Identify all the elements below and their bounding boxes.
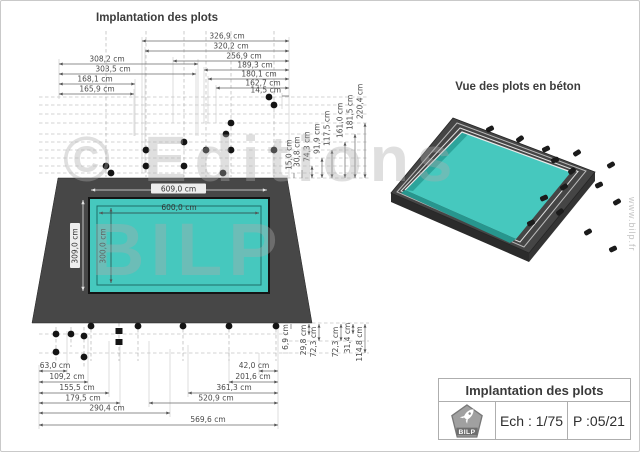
dim-label: 30,8 cm (293, 136, 302, 167)
dim-label: 161,0 cm (336, 103, 345, 138)
plot-dot (228, 147, 235, 154)
plot-dot (108, 170, 115, 177)
dim-label: 180,1 cm (241, 70, 276, 79)
dim-label: 109,2 cm (49, 372, 84, 381)
dim-label: 320,2 cm (213, 42, 248, 51)
plot-dot (223, 131, 230, 138)
dim-label: 189,3 cm (237, 61, 272, 70)
plot-dot (68, 331, 75, 338)
dim-label: 155,5 cm (59, 383, 94, 392)
page-number: P :05/21 (568, 402, 630, 439)
dim-label: 303,5 cm (95, 65, 130, 74)
dim-label: 220,4 cm (356, 84, 365, 119)
plot-block (594, 181, 603, 189)
plot-dot (180, 323, 187, 330)
plot-dot (273, 323, 280, 330)
dim-labels-bottom-right: 42,0 cm 201,6 cm 361,3 cm 520,9 cm 569,6… (190, 361, 270, 424)
plot-block (572, 149, 581, 157)
plot-square (116, 328, 123, 334)
dim-label: 326,9 cm (209, 32, 244, 41)
plot-dot (81, 333, 88, 340)
dim-label: 72,3 cm (309, 327, 318, 358)
bilp-logo-text: BILP (459, 428, 476, 435)
dim-label: 569,6 cm (190, 415, 225, 424)
bilp-logo-icon: BILP (451, 404, 483, 438)
plot-dot (53, 331, 60, 338)
dim-label: 600,0 cm (161, 203, 196, 212)
plot-dot (220, 170, 227, 177)
plot-block (583, 228, 592, 236)
plot-dot (271, 147, 278, 154)
dim-label: 201,6 cm (235, 372, 270, 381)
dim-label: 361,3 cm (216, 383, 251, 392)
dim-label: 179,5 cm (65, 394, 100, 403)
plot-dot (181, 139, 188, 146)
dim-label: 520,9 cm (198, 394, 233, 403)
plot-dot (203, 147, 210, 154)
dim-labels-bottom-vertical: 6,9 cm 29,8 cm 72,3 cm 72,3 cm 31,4 cm 1… (281, 323, 364, 362)
title-block: Implantation des plots BILP Ech : 1/75 P… (438, 378, 631, 440)
plot-dot (135, 323, 142, 330)
plan-view-title: Implantation des plots (96, 12, 218, 24)
plot-dot (88, 323, 95, 330)
dim-label: 14,5 cm (250, 86, 281, 95)
dim-labels-right: 15,0 cm 30,8 cm 74,3 cm 91,9 cm 117,5 cm… (285, 84, 365, 170)
dim-label: 29,8 cm (299, 325, 308, 356)
scale-value: Ech : 1/75 (496, 402, 568, 439)
dim-label: 72,3 cm (331, 327, 340, 358)
plot-block (608, 245, 617, 253)
dim-label: 6,9 cm (281, 324, 290, 350)
title-block-title: Implantation des plots (439, 379, 630, 402)
dim-label: 165,9 cm (79, 85, 114, 94)
dim-label: 609,0 cm (161, 185, 196, 194)
plot-dot (228, 120, 235, 127)
perspective-view-title: Vue des plots en béton (453, 81, 583, 93)
dim-label: 91,9 cm (313, 123, 322, 154)
dim-label: 309,0 cm (71, 228, 80, 263)
plot-block (612, 198, 621, 206)
plot-block (606, 161, 615, 169)
dim-label: 31,4 cm (343, 323, 352, 354)
website-vertical-label: www.bilp.fr (627, 197, 637, 252)
dim-label: 256,9 cm (226, 52, 261, 61)
dim-label: 114,8 cm (355, 326, 364, 361)
dim-label: 63,0 cm (40, 361, 71, 370)
dim-label: 74,3 cm (303, 131, 312, 162)
bilp-logo: BILP (439, 402, 496, 439)
plot-dot (226, 323, 233, 330)
pool-plan (89, 198, 269, 293)
dim-label: 168,1 cm (77, 75, 112, 84)
dim-label: 308,2 cm (89, 55, 124, 64)
dim-label: 42,0 cm (239, 361, 270, 370)
plot-dot (143, 163, 150, 170)
dim-labels-bottom-left: 63,0 cm 109,2 cm 155,5 cm 179,5 cm 290,4… (40, 361, 125, 413)
plot-dot (53, 349, 60, 356)
plot-dot (81, 354, 88, 361)
drawing-page: Implantation des plots Vue des plots en … (0, 0, 640, 452)
plot-square (116, 339, 123, 345)
plot-dot (266, 94, 273, 101)
plan-view: 609,0 cm 600,0 cm 309,0 cm 300,0 cm (32, 31, 371, 429)
plot-dot (181, 163, 188, 170)
dim-label: 300,0 cm (99, 228, 108, 263)
dim-label: 181,5 cm (346, 95, 355, 130)
plot-dot (271, 102, 278, 109)
dim-label: 290,4 cm (89, 404, 124, 413)
plot-dot (103, 163, 110, 170)
plot-dot (143, 147, 150, 154)
perspective-view (391, 118, 622, 262)
dim-label: 117,5 cm (323, 111, 332, 146)
